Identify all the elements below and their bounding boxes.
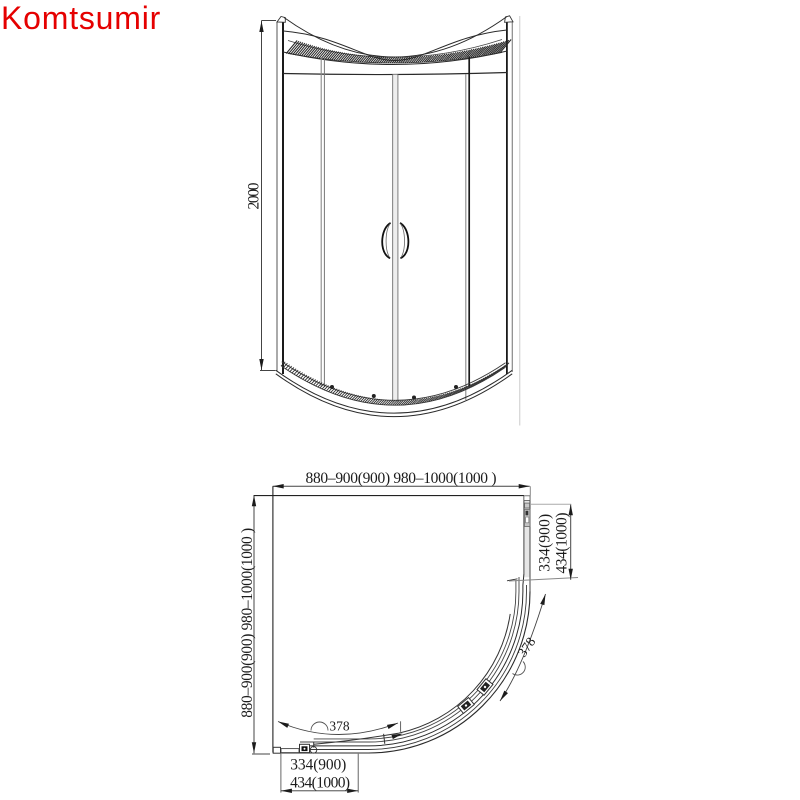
svg-text:434(1000): 434(1000) <box>553 513 570 574</box>
svg-text:880–900(900) 980–1000(1000 ): 880–900(900) 980–1000(1000 ) <box>306 470 497 487</box>
svg-text:434(1000): 434(1000) <box>290 775 350 792</box>
svg-text:378: 378 <box>329 719 350 734</box>
svg-text:Komtsumir: Komtsumir <box>1 0 161 36</box>
svg-text:334(900): 334(900) <box>290 757 346 774</box>
svg-text:334(900): 334(900) <box>536 514 553 572</box>
svg-text:880–900(900) 980–1000(1000 ): 880–900(900) 980–1000(1000 ) <box>239 528 256 718</box>
svg-text:2000: 2000 <box>246 182 263 209</box>
